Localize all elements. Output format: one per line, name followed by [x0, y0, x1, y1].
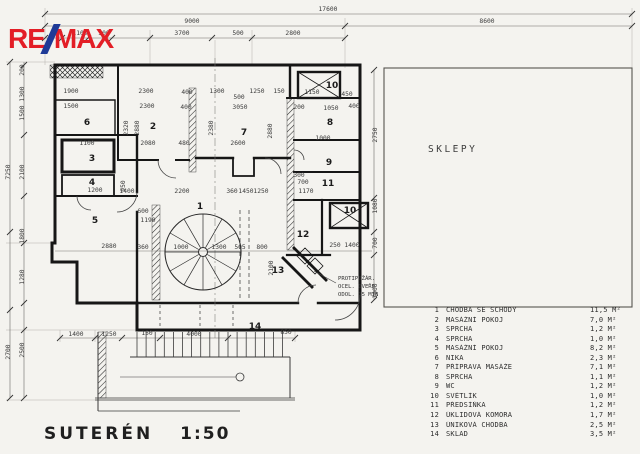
room-number: 7	[241, 128, 247, 138]
legend-room-name: ÚNIKOVÁ CHODBA	[446, 421, 590, 429]
dimension-label: 2880	[101, 243, 116, 250]
legend-room-area: 1,2 M²	[590, 401, 636, 409]
note-line: ODOL. 15 MIN	[338, 292, 378, 298]
room-number: 10	[326, 81, 339, 91]
legend-room-number: 11	[424, 401, 439, 409]
legend-room-number: 5	[424, 344, 439, 352]
dimension-label: 950	[120, 180, 127, 192]
dimension-label: 2380	[208, 120, 215, 135]
room-legend: 1CHODBA SE SCHODY11,5 M²2MASÁŽNÍ POKOJ7,…	[424, 306, 636, 440]
legend-row: 6NIKA2,3 M²	[424, 354, 636, 364]
dimension-label: 1000	[173, 244, 188, 251]
dimension-label: 1500	[63, 103, 78, 110]
legend-row: 9WC1,2 M²	[424, 382, 636, 392]
legend-room-name: CHODBA SE SCHODY	[446, 306, 590, 314]
note-line: OCEL. DVEŘE	[338, 282, 376, 290]
walls	[52, 65, 368, 330]
legend-room-number: 2	[424, 316, 439, 324]
legend-row: 3SPRCHA1,2 M²	[424, 325, 636, 335]
legend-room-area: 8,2 M²	[590, 344, 636, 352]
note-line: PROTIPOŽÁR.	[338, 274, 375, 282]
room-number: 1	[197, 202, 203, 212]
legend-room-number: 7	[424, 363, 439, 371]
room-number: 8	[327, 118, 333, 128]
dimension-label: 360	[226, 188, 238, 195]
sklepy-outline	[384, 68, 632, 307]
legend-room-number: 8	[424, 373, 439, 381]
room-number: 14	[249, 322, 262, 332]
remax-logo-max: MAX	[54, 25, 113, 53]
room-number: 4	[89, 178, 95, 188]
legend-room-number: 4	[424, 335, 439, 343]
legend-room-area: 1,2 M²	[590, 382, 636, 390]
legend-row: 14SKLAD3,5 M²	[424, 430, 636, 440]
dimension-label: 700	[372, 237, 379, 249]
legend-room-area: 2,3 M²	[590, 354, 636, 362]
dimension-label: 2880	[267, 123, 274, 138]
dimension-label: 1250	[249, 88, 264, 95]
dimension-label: 1080	[372, 198, 379, 213]
note-leader-line	[314, 271, 336, 283]
dimension-label: 200	[293, 104, 305, 111]
dimension-label: 3700	[174, 30, 189, 37]
dimension-label: 1900	[63, 88, 78, 95]
legend-room-name: MASÁŽNÍ POKOJ	[446, 316, 590, 324]
legend-room-number: 9	[424, 382, 439, 390]
legend-room-name: ÚKLIDOVÁ KOMORA	[446, 411, 590, 419]
legend-room-name: SKLAD	[446, 430, 590, 438]
legend-row: 2MASÁŽNÍ POKOJ7,0 M²	[424, 316, 636, 326]
dimension-label: 1400	[344, 242, 359, 249]
room-number: 12	[297, 230, 310, 240]
dimension-label: 500	[233, 94, 245, 101]
dimension-label: 1300	[19, 86, 26, 101]
dimension-label: 450	[341, 91, 353, 98]
door-arcs	[77, 150, 360, 320]
room-numbers: 123456789101011121314	[84, 81, 356, 332]
dimension-label: 2800	[285, 30, 300, 37]
legend-row: 5MASÁŽNÍ POKOJ8,2 M²	[424, 344, 636, 354]
dimension-label: 1150	[304, 89, 319, 96]
legend-room-area: 7,1 M²	[590, 363, 636, 371]
fire-door-note: PROTIPOŽÁR.OCEL. DVEŘEODOL. 15 MIN	[338, 274, 378, 298]
drain-symbol	[236, 373, 244, 381]
blueprint-page: 1760090008600300110050037005002800725027…	[0, 0, 640, 454]
legend-room-name: SPRCHA	[446, 325, 590, 333]
legend-room-area: 1,0 M²	[590, 335, 636, 343]
dimension-label: 2300	[138, 88, 153, 95]
dimension-label: 1200	[87, 187, 102, 194]
dimension-label: 17600	[319, 6, 338, 13]
dimension-label: 2200	[174, 188, 189, 195]
dimension-label: 1170	[298, 188, 313, 195]
dimension-label: 2600	[230, 140, 245, 147]
remax-logo: RE MAX	[8, 22, 113, 56]
dimension-label: 7250	[5, 164, 12, 179]
dimension-label: 850	[280, 329, 292, 336]
legend-room-number: 10	[424, 392, 439, 400]
legend-room-number: 6	[424, 354, 439, 362]
dimension-label: 1250	[101, 331, 116, 338]
legend-row: 10SVĚTLÍK1,0 M²	[424, 392, 636, 402]
dimension-label: 1800	[19, 228, 26, 243]
dimension-label: 200	[19, 64, 26, 76]
dimension-label: 1000	[315, 135, 330, 142]
dimension-label: 1300	[209, 88, 224, 95]
legend-room-number: 13	[424, 421, 439, 429]
dimension-label: 150	[273, 88, 285, 95]
legend-room-number: 12	[424, 411, 439, 419]
dimension-label: 2500	[19, 342, 26, 357]
wall-hatching	[50, 65, 294, 398]
legend-room-number: 14	[424, 430, 439, 438]
spiral-staircase	[165, 214, 241, 290]
legend-row: 4SPRCHA1,0 M²	[424, 335, 636, 345]
legend-row: 12ÚKLIDOVÁ KOMORA1,7 M²	[424, 411, 636, 421]
dimension-label: 4000	[186, 331, 201, 338]
room-number: 6	[84, 118, 90, 128]
legend-room-area: 1,0 M²	[590, 392, 636, 400]
dimension-label: 300	[293, 172, 305, 179]
legend-room-name: WC	[446, 382, 590, 390]
legend-row: 7PŘÍPRAVA MASÁŽE7,1 M²	[424, 363, 636, 373]
dimension-label: 1100	[79, 140, 94, 147]
dimension-label: 3050	[232, 104, 247, 111]
legend-room-name: SVĚTLÍK	[446, 392, 590, 400]
remax-logo-re: RE	[8, 25, 45, 53]
legend-room-area: 11,5 M²	[590, 306, 636, 314]
room-number: 13	[272, 266, 285, 276]
dimension-label: 400	[181, 89, 193, 96]
dimension-label: 480	[178, 140, 190, 147]
dimension-label: 2080	[140, 140, 155, 147]
dimension-label: 9000	[184, 18, 199, 25]
legend-room-name: SPRCHA	[446, 335, 590, 343]
legend-room-name: SPRCHA	[446, 373, 590, 381]
drawing-title-name: SUTERÉN	[44, 424, 153, 444]
legend-row: 13ÚNIKOVÁ CHODBA2,5 M²	[424, 421, 636, 431]
legend-room-area: 1,2 M²	[590, 325, 636, 333]
dimension-label: 1280	[19, 269, 26, 284]
dimension-label: 1250	[253, 188, 268, 195]
legend-row: 1CHODBA SE SCHODY11,5 M²	[424, 306, 636, 316]
dimension-label: 2750	[372, 127, 379, 142]
room-number: 5	[92, 216, 98, 226]
legend-row: 8SPRCHA1,1 M²	[424, 373, 636, 383]
dimension-label: 700	[297, 179, 309, 186]
dimension-label: 600	[137, 208, 149, 215]
dimension-label: 2880	[134, 120, 141, 135]
legend-room-name: PŘEDSÍŇKA	[446, 401, 590, 409]
legend-row: 11PŘEDSÍŇKA1,2 M²	[424, 401, 636, 411]
dimension-label: 1050	[323, 105, 338, 112]
drawing-title: SUTERÉN 1:50	[44, 424, 230, 444]
room-number: 2	[150, 122, 156, 132]
legend-room-area: 1,1 M²	[590, 373, 636, 381]
dimension-label: 2700	[5, 344, 12, 359]
legend-room-name: NIKA	[446, 354, 590, 362]
dimension-label: 360	[137, 244, 149, 251]
dimension-label: 400	[348, 103, 360, 110]
legend-room-name: PŘÍPRAVA MASÁŽE	[446, 363, 590, 371]
legend-room-name: MASÁŽNÍ POKOJ	[446, 344, 590, 352]
legend-room-area: 2,5 M²	[590, 421, 636, 429]
dimension-label: 8600	[479, 18, 494, 25]
dimension-label: 1400	[68, 331, 83, 338]
legend-room-area: 3,5 M²	[590, 430, 636, 438]
room-number: 9	[326, 158, 332, 168]
dimension-label: 2100	[19, 164, 26, 179]
dimension-label: 2300	[139, 103, 154, 110]
legend-room-number: 3	[424, 325, 439, 333]
dimension-label: 400	[180, 104, 192, 111]
dimension-label: 1300	[211, 244, 226, 251]
legend-room-number: 1	[424, 306, 439, 314]
dimension-label: 2320	[123, 120, 130, 135]
room-number: 3	[89, 154, 95, 164]
dimension-label: 150	[141, 330, 153, 337]
dimension-label: 250	[329, 242, 341, 249]
sklepy-label: SKLEPY	[428, 144, 477, 155]
dimension-label: 1190	[140, 217, 155, 224]
dimension-label: 1500	[19, 105, 26, 120]
drawing-scale: 1:50	[180, 424, 230, 444]
room-number: 11	[322, 179, 335, 189]
legend-room-area: 7,0 M²	[590, 316, 636, 324]
dimension-label: 800	[256, 244, 268, 251]
room-number: 10	[344, 206, 357, 216]
dimension-label: 500	[232, 30, 244, 37]
legend-room-area: 1,7 M²	[590, 411, 636, 419]
dimension-label: 505	[234, 244, 246, 251]
exterior-stairs	[95, 332, 295, 411]
dimension-label: 1450	[238, 188, 253, 195]
